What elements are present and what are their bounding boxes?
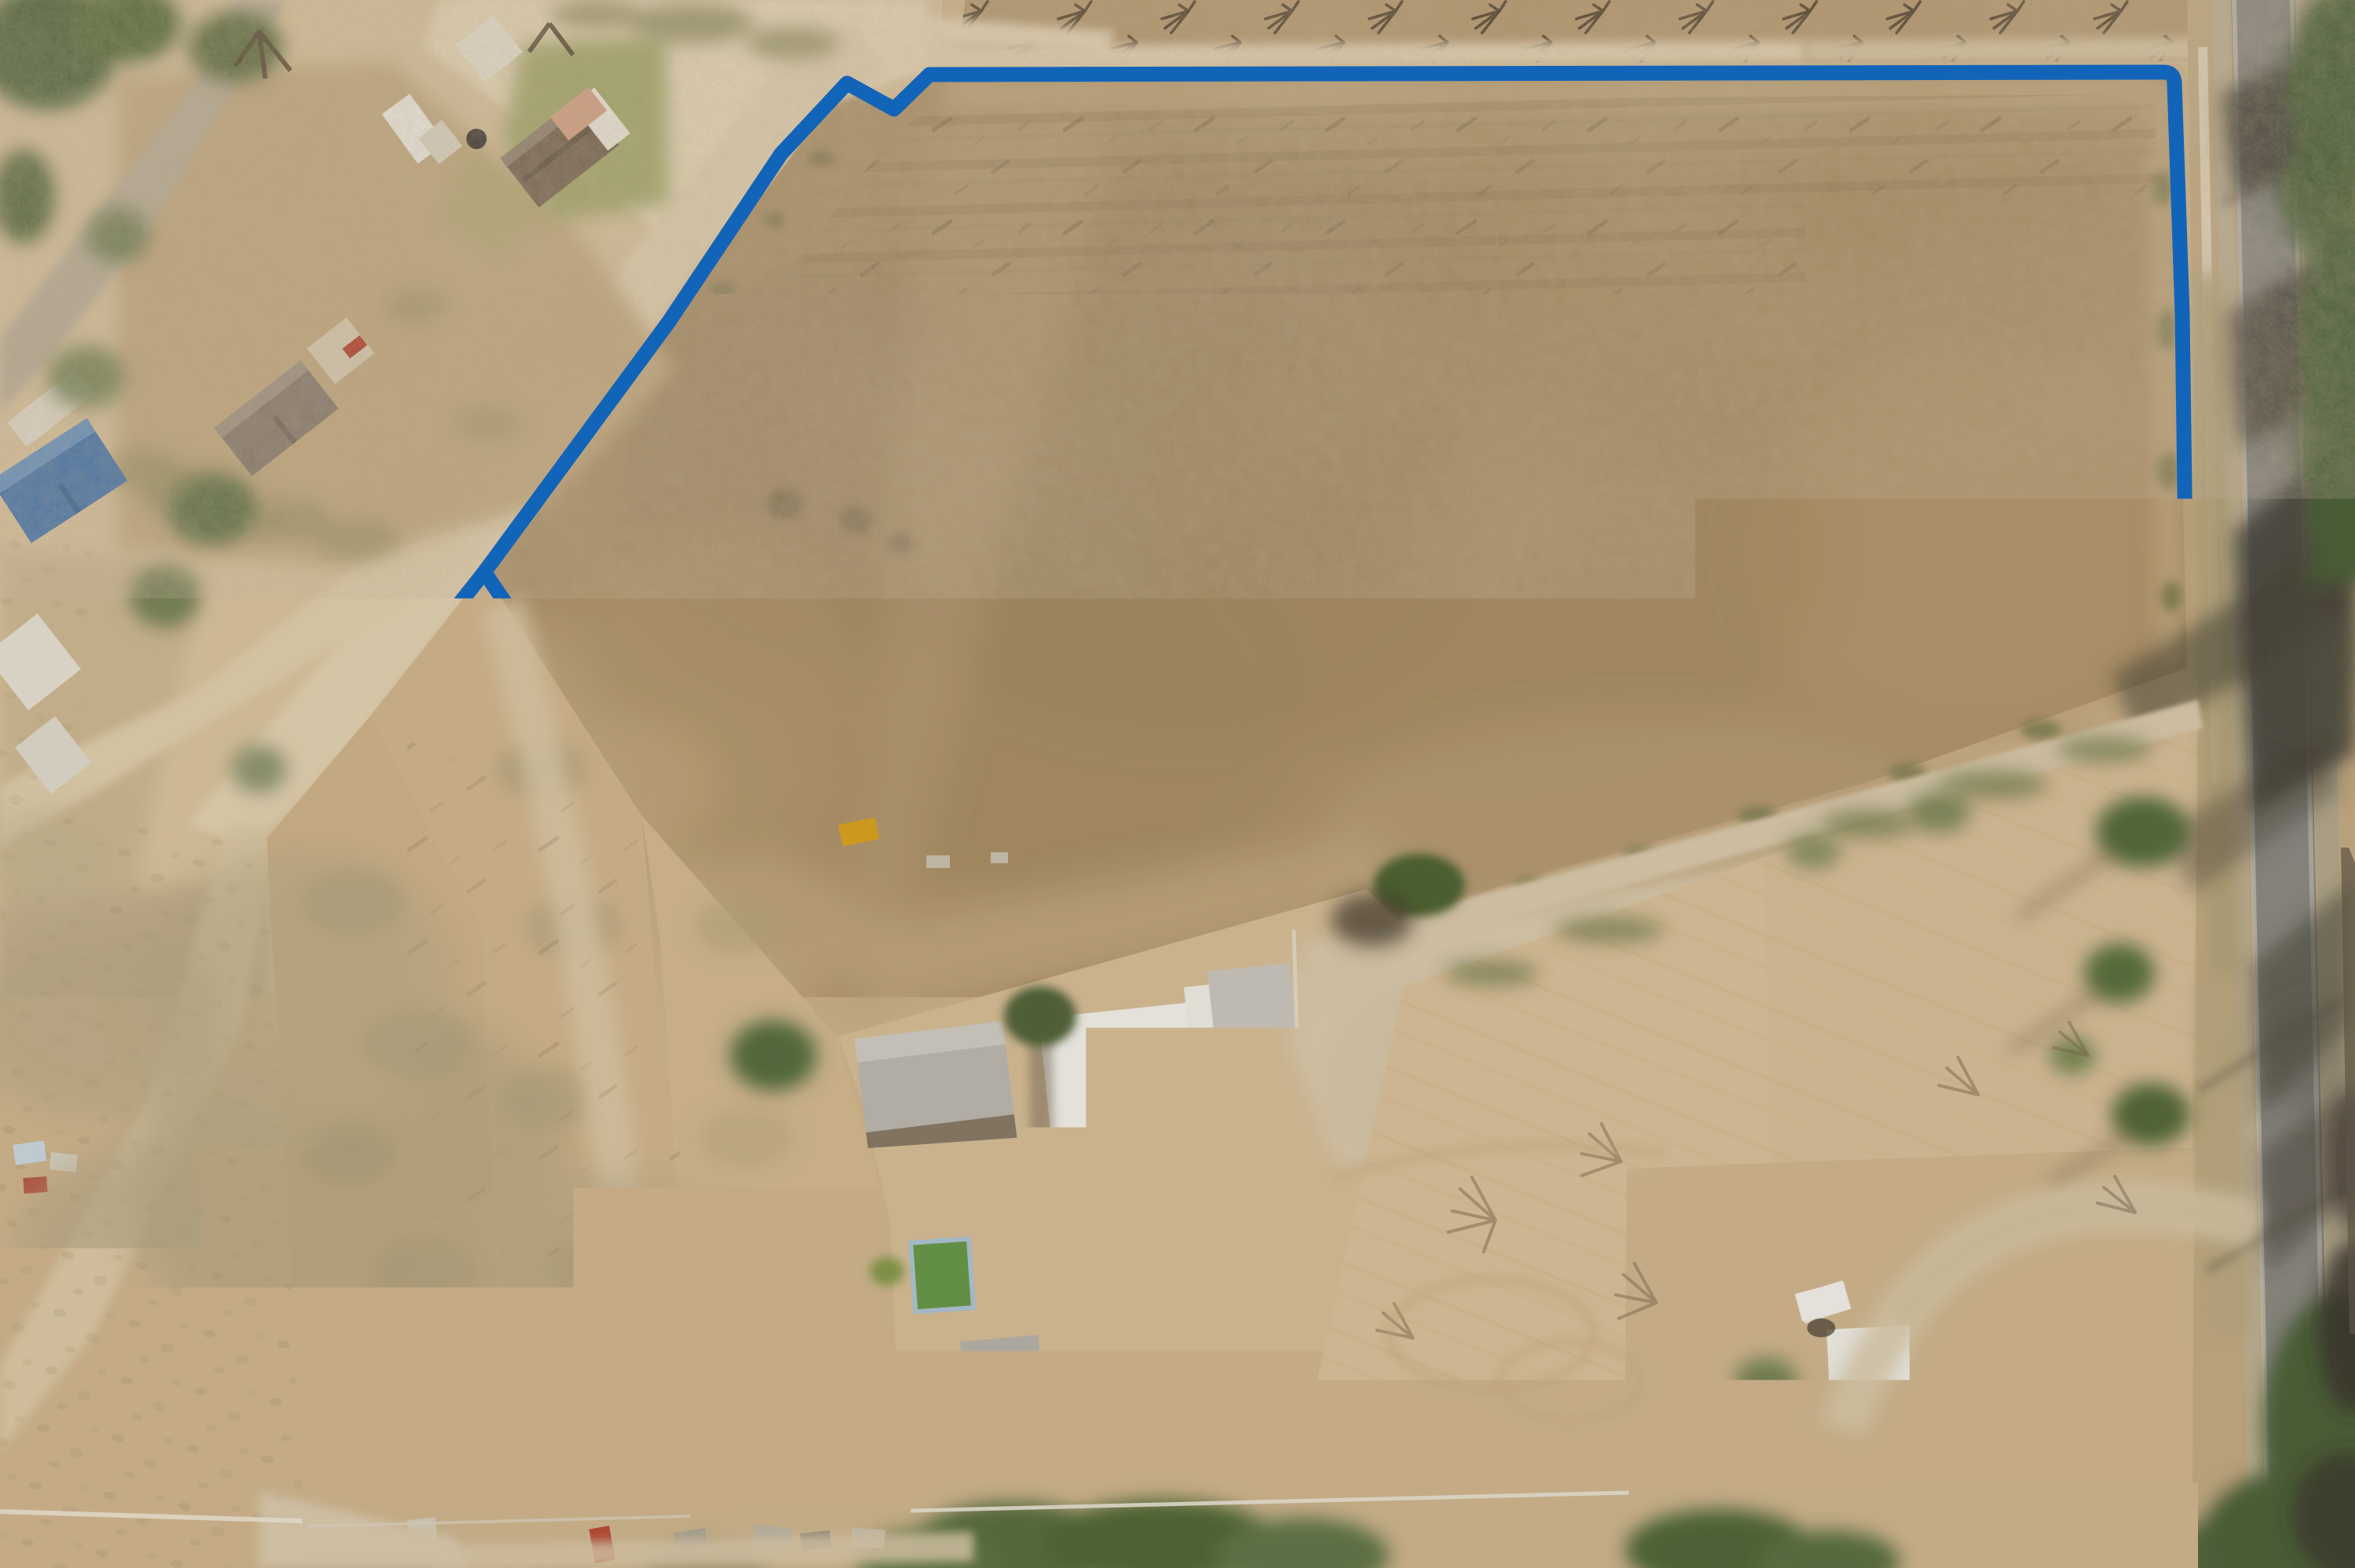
svg-text:©2026 SNMMLS: ©2026 SNMMLS [6,1472,341,1525]
